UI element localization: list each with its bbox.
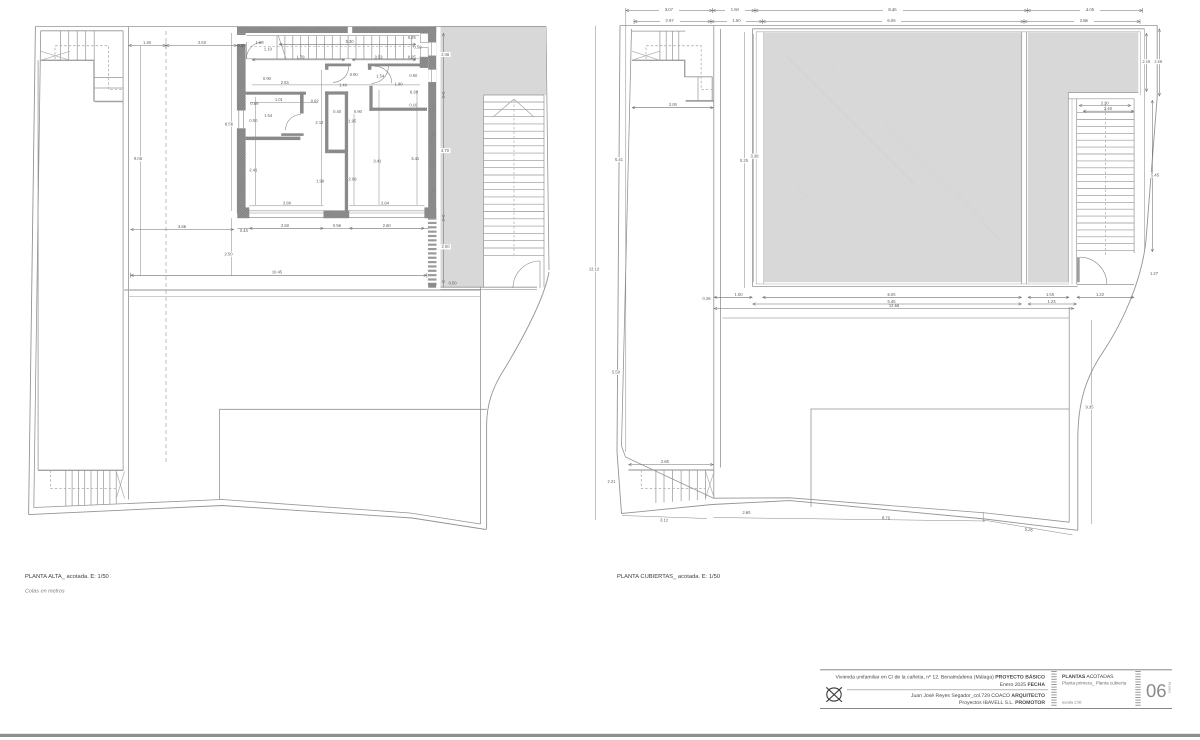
svg-text:9.35: 9.35 <box>1086 405 1095 410</box>
svg-text:0.25: 0.25 <box>408 35 417 40</box>
svg-text:2.65: 2.65 <box>743 510 752 515</box>
svg-text:Cotas en metros: Cotas en metros <box>25 589 65 595</box>
svg-text:0.43: 0.43 <box>240 228 249 233</box>
svg-text:4.05: 4.05 <box>1086 7 1095 12</box>
svg-text:0.90: 0.90 <box>263 76 272 81</box>
svg-text:9.08: 9.08 <box>134 156 143 161</box>
svg-text:5.30: 5.30 <box>346 39 355 44</box>
svg-text:0.25: 0.25 <box>408 54 417 59</box>
svg-text:0.26: 0.26 <box>703 296 712 301</box>
svg-text:Juan José Reyes Segador_col.72: Juan José Reyes Segador_col.729 COACO AR… <box>911 693 1045 699</box>
svg-text:2.00: 2.00 <box>442 244 451 249</box>
svg-text:2.30: 2.30 <box>1101 100 1110 105</box>
svg-text:1.50: 1.50 <box>735 292 744 297</box>
svg-text:Enero 2025 FECHA: Enero 2025 FECHA <box>1000 682 1046 688</box>
svg-text:3.07: 3.07 <box>665 7 674 12</box>
svg-text:0.40: 0.40 <box>333 109 342 114</box>
svg-text:5.41: 5.41 <box>615 157 624 162</box>
svg-text:1.90: 1.90 <box>395 82 404 87</box>
svg-text:2.40: 2.40 <box>1104 106 1113 111</box>
svg-text:Planta primera_ Planta cubiert: Planta primera_ Planta cubierta <box>1062 680 1127 685</box>
svg-text:1.95: 1.95 <box>348 119 357 124</box>
svg-text:1.22: 1.22 <box>1096 292 1105 297</box>
svg-text:2.80: 2.80 <box>281 223 290 228</box>
svg-text:PLANTA CUBIERTAS_ acotada. E:: PLANTA CUBIERTAS_ acotada. E: 1/50 <box>617 573 720 580</box>
svg-text:2.41: 2.41 <box>249 168 258 173</box>
svg-text:0.50: 0.50 <box>409 73 418 78</box>
svg-text:PLANTA ALTA_ acotada. E: 1/50: PLANTA ALTA_ acotada. E: 1/50 <box>25 573 109 580</box>
svg-text:Proyectos IBAVELL S.L. PROMOT: Proyectos IBAVELL S.L. PROMOTOR <box>959 700 1045 706</box>
svg-text:12.12: 12.12 <box>589 267 600 272</box>
svg-text:1.60: 1.60 <box>256 40 265 45</box>
svg-text:3.12: 3.12 <box>660 517 669 523</box>
svg-text:Vivienda unifamiliar en C/ de: Vivienda unifamiliar en C/ de la cañetia… <box>836 674 1046 681</box>
svg-text:1.50: 1.50 <box>731 7 740 12</box>
svg-text:3.86: 3.86 <box>178 224 187 229</box>
svg-text:2.50: 2.50 <box>198 40 207 45</box>
svg-text:2.65: 2.65 <box>661 459 670 464</box>
svg-text:6.05: 6.05 <box>887 18 896 23</box>
svg-text:0.50: 0.50 <box>249 118 258 123</box>
svg-text:3.53: 3.53 <box>375 55 384 60</box>
svg-text:1.78: 1.78 <box>297 55 306 60</box>
svg-text:12.68: 12.68 <box>889 303 900 308</box>
svg-text:5.50: 5.50 <box>612 370 621 375</box>
svg-text:6.75: 6.75 <box>882 515 891 520</box>
svg-text:3.41: 3.41 <box>411 156 420 161</box>
svg-text:1.01: 1.01 <box>275 97 284 102</box>
svg-text:PLANO: PLANO <box>1168 682 1172 693</box>
svg-text:0.82: 0.82 <box>311 99 320 104</box>
svg-text:2.84: 2.84 <box>381 201 390 206</box>
svg-text:10.45: 10.45 <box>272 270 283 275</box>
svg-text:0.10: 0.10 <box>409 103 418 108</box>
svg-text:6.56: 6.56 <box>225 122 234 127</box>
svg-text:6.05: 6.05 <box>888 292 897 297</box>
svg-text:0.90: 0.90 <box>354 109 363 114</box>
svg-text:5.45: 5.45 <box>1151 173 1160 178</box>
svg-text:0.58: 0.58 <box>414 44 423 49</box>
svg-text:1.98: 1.98 <box>316 178 325 183</box>
svg-text:2.05: 2.05 <box>669 102 678 107</box>
svg-text:2.12: 2.12 <box>315 120 324 125</box>
svg-text:PLANTAS ACOTADAS: PLANTAS ACOTADAS <box>1062 674 1114 680</box>
svg-text:1.23: 1.23 <box>1048 299 1057 304</box>
svg-text:06: 06 <box>1146 680 1167 701</box>
svg-text:2.21: 2.21 <box>608 479 617 484</box>
svg-text:1.55: 1.55 <box>1046 292 1055 297</box>
svg-text:6.39: 6.39 <box>410 90 419 95</box>
svg-text:0.30: 0.30 <box>238 43 247 48</box>
svg-text:0.90: 0.90 <box>350 72 359 77</box>
svg-text:2.80: 2.80 <box>283 201 292 206</box>
svg-text:4.70: 4.70 <box>441 148 450 153</box>
svg-text:0.56: 0.56 <box>333 223 342 228</box>
svg-text:0.69: 0.69 <box>250 101 259 106</box>
svg-text:2.97: 2.97 <box>666 18 675 23</box>
svg-text:5.25: 5.25 <box>740 158 749 163</box>
svg-text:1.50: 1.50 <box>732 18 741 23</box>
svg-text:2.50: 2.50 <box>225 252 234 257</box>
svg-text:1.10: 1.10 <box>264 47 273 52</box>
svg-text:1.30: 1.30 <box>143 40 152 45</box>
svg-text:0.50: 0.50 <box>449 281 458 286</box>
svg-text:2.53: 2.53 <box>281 80 290 85</box>
svg-text:1.40: 1.40 <box>339 82 348 87</box>
svg-text:5.26: 5.26 <box>1025 526 1034 532</box>
svg-text:1.27: 1.27 <box>1150 271 1159 276</box>
svg-text:2.59: 2.59 <box>1154 59 1162 64</box>
svg-text:8.45: 8.45 <box>888 7 897 12</box>
svg-text:1.54: 1.54 <box>376 73 385 78</box>
svg-text:2.80: 2.80 <box>383 223 392 228</box>
svg-text:3.41: 3.41 <box>373 159 382 164</box>
svg-text:1.54: 1.54 <box>264 113 273 118</box>
svg-text:2.08: 2.08 <box>441 52 450 57</box>
svg-text:2.86: 2.86 <box>1080 18 1089 23</box>
svg-text:2.08: 2.08 <box>349 176 358 181</box>
svg-text:2.19: 2.19 <box>1143 59 1151 64</box>
svg-text:3.38: 3.38 <box>751 154 760 159</box>
svg-text:escala 1:50: escala 1:50 <box>1062 700 1081 704</box>
